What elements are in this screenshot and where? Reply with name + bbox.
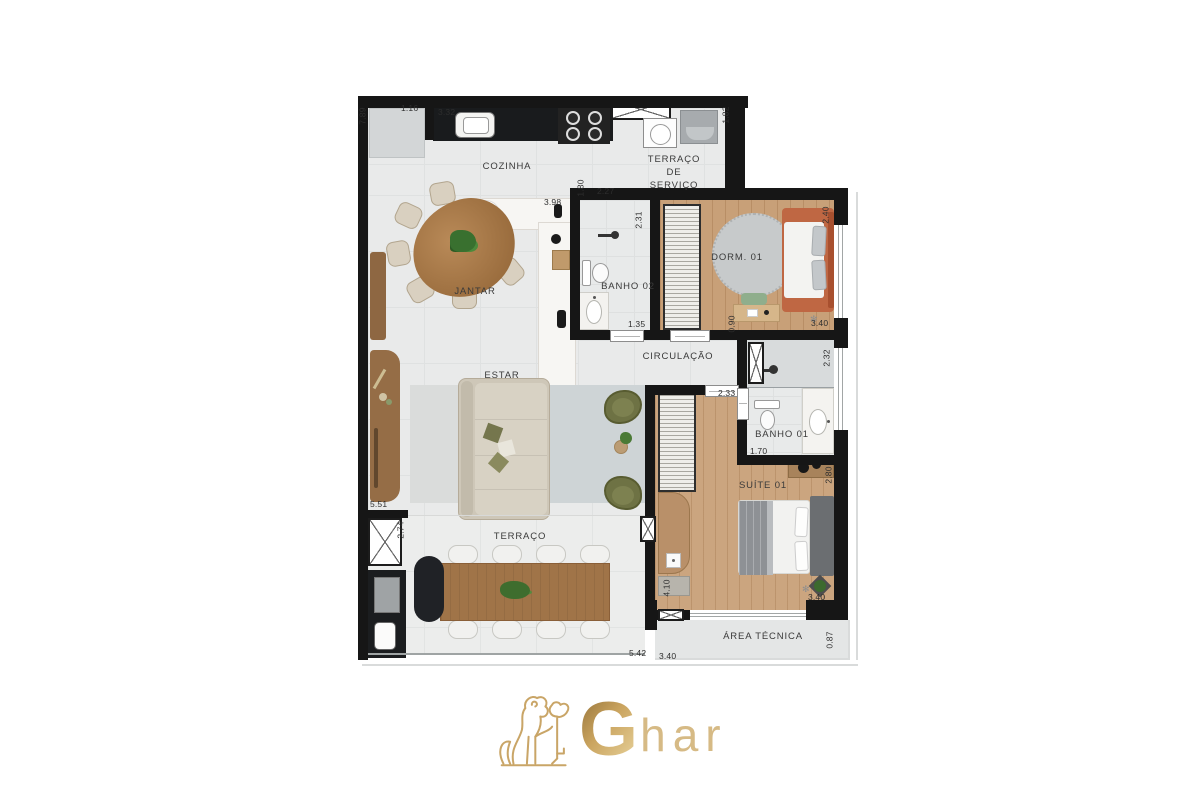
hallway-floor [578, 340, 737, 390]
duct-shaft-icon [640, 516, 656, 542]
terrace-chair [448, 545, 478, 564]
dimension-label: 2.31 [634, 211, 644, 228]
toilet-icon [760, 410, 775, 430]
sideboard-shadow [374, 428, 378, 488]
kettle-icon [551, 234, 561, 244]
room-label-circulacao: CIRCULAÇÃO [643, 351, 714, 364]
suite-desk [658, 492, 690, 574]
technical-area-edge [655, 658, 849, 660]
headboard [810, 496, 834, 576]
kitchen-sink-icon [455, 112, 495, 138]
tank-bowl [650, 124, 671, 145]
plant-icon [814, 580, 826, 592]
terrace-chair [580, 620, 610, 639]
sink-bowl [463, 117, 489, 134]
dimension-label: 5.42 [629, 648, 646, 658]
faucet-icon [593, 296, 596, 299]
shower-icon [611, 231, 619, 239]
decor-plant-icon [386, 399, 392, 405]
dimension-label: 2.32 [822, 349, 832, 366]
logo-letter-g: G [579, 690, 638, 770]
pillow [811, 226, 827, 257]
dimension-label: 3.98 [544, 197, 561, 207]
dimension-label: 2.80 [824, 466, 834, 483]
wall [358, 96, 368, 660]
facade-line [362, 664, 858, 666]
room-label-jantar: JANTAR [454, 286, 495, 299]
bench-cushion [741, 293, 767, 305]
dimension-label: 1.16 [401, 103, 418, 113]
duct-shaft-icon [748, 342, 764, 384]
terrace-railing [368, 653, 645, 655]
washer-front [686, 127, 714, 140]
plant-icon [620, 432, 632, 444]
dimension-label: 2.74 [396, 521, 406, 538]
grill-icon [414, 556, 444, 622]
wall [358, 510, 408, 518]
dimension-label: 1.35 [628, 319, 645, 329]
vanity [802, 388, 834, 454]
duct-shaft-icon [658, 609, 684, 621]
logo-lion-key-icon [495, 688, 579, 772]
washbasin-icon [586, 300, 602, 324]
toilet-icon [592, 263, 609, 283]
grinder-icon [557, 310, 566, 328]
sideboard-upper [370, 252, 386, 340]
room-label-terraco: TERRAÇO [494, 531, 546, 544]
pillow [794, 507, 809, 538]
washing-machine-icon [680, 110, 718, 144]
wall [737, 340, 747, 388]
room-label-dorm01: DORM. 01 [711, 252, 763, 265]
toilet-tank [754, 400, 780, 409]
window [834, 348, 848, 430]
terrace-chair [536, 620, 566, 639]
dimension-label: 2.40 [821, 206, 831, 223]
counter-inset [374, 577, 400, 613]
dimension-label: 1.82 [721, 106, 731, 123]
wall [570, 330, 610, 340]
terrace-chair [580, 545, 610, 564]
sofa-armrest [461, 381, 473, 517]
dimension-label: 1.70 [750, 446, 767, 456]
terrace-sink-icon [374, 622, 396, 650]
apartment-floorplan: ✻ [352, 88, 852, 678]
terrace-boundary [368, 515, 645, 516]
dimension-label: 0.87 [825, 631, 835, 648]
shower-icon [769, 365, 778, 374]
dimension-label: 3.32 [438, 107, 455, 117]
toilet-tank [582, 260, 591, 286]
dimension-label: 3.40 [808, 592, 825, 602]
pillow [794, 541, 809, 572]
sofa [458, 378, 550, 520]
table-plant-icon [450, 230, 476, 252]
room-label-estar: ESTAR [484, 370, 519, 383]
wall [650, 195, 660, 340]
laundry-tank-icon [643, 118, 677, 148]
dimension-label: 4.10 [662, 579, 672, 596]
wardrobe [658, 390, 696, 492]
window [834, 225, 848, 318]
terrace-chair [492, 545, 522, 564]
door-bath2 [610, 330, 644, 342]
dimension-label: 2.33 [718, 388, 735, 398]
facade-line [856, 192, 858, 660]
stove-icon [558, 106, 610, 144]
terrace-chair [448, 620, 478, 639]
kitchen-corner-counter [369, 108, 425, 158]
dimension-label: 5.51 [370, 499, 387, 509]
logo-text-har: har [640, 708, 727, 762]
faucet-icon [827, 420, 830, 423]
dimension-label: 1.80 [576, 179, 586, 196]
terrace-chair [536, 545, 566, 564]
sliding-door-window [690, 610, 806, 620]
wall [806, 600, 846, 620]
wall-column [425, 100, 434, 140]
wall [642, 330, 670, 340]
terrace-counter [368, 570, 406, 658]
bed-suite [738, 500, 810, 574]
room-label-banho01: BANHO 01 [755, 429, 809, 442]
terrace-chair [492, 620, 522, 639]
dining-chair [385, 239, 412, 268]
bed-blanket [739, 501, 767, 575]
wall [570, 188, 580, 340]
wall [737, 455, 846, 465]
wall [645, 385, 655, 610]
floorplan-page: ✻ [0, 0, 1200, 800]
door-dorm1 [670, 330, 710, 342]
wardrobe [663, 204, 701, 330]
dimension-label: 7.89 [358, 107, 368, 124]
dimension-label: 2.27 [597, 186, 614, 196]
door-bath1 [737, 388, 749, 420]
washbasin-icon [809, 409, 827, 435]
table-plant-icon [500, 581, 530, 599]
vanity [579, 292, 609, 330]
room-label-area-tecnica: ÁREA TÉCNICA [723, 631, 803, 644]
dimension-label: 3.40 [659, 651, 676, 661]
dimension-label: 0.90 [727, 315, 737, 332]
room-label-cozinha: COZINHA [483, 161, 532, 174]
pillow [811, 260, 827, 291]
ghar-logo: G har [495, 686, 728, 774]
technical-area-edge-right [848, 620, 850, 660]
bedroom-desk [733, 304, 780, 322]
dimension-label: 3.40 [811, 318, 828, 328]
room-label-suite01: SUÍTE 01 [739, 480, 787, 493]
room-label-banho02: BANHO 02 [601, 281, 655, 294]
tray-icon [552, 250, 570, 270]
